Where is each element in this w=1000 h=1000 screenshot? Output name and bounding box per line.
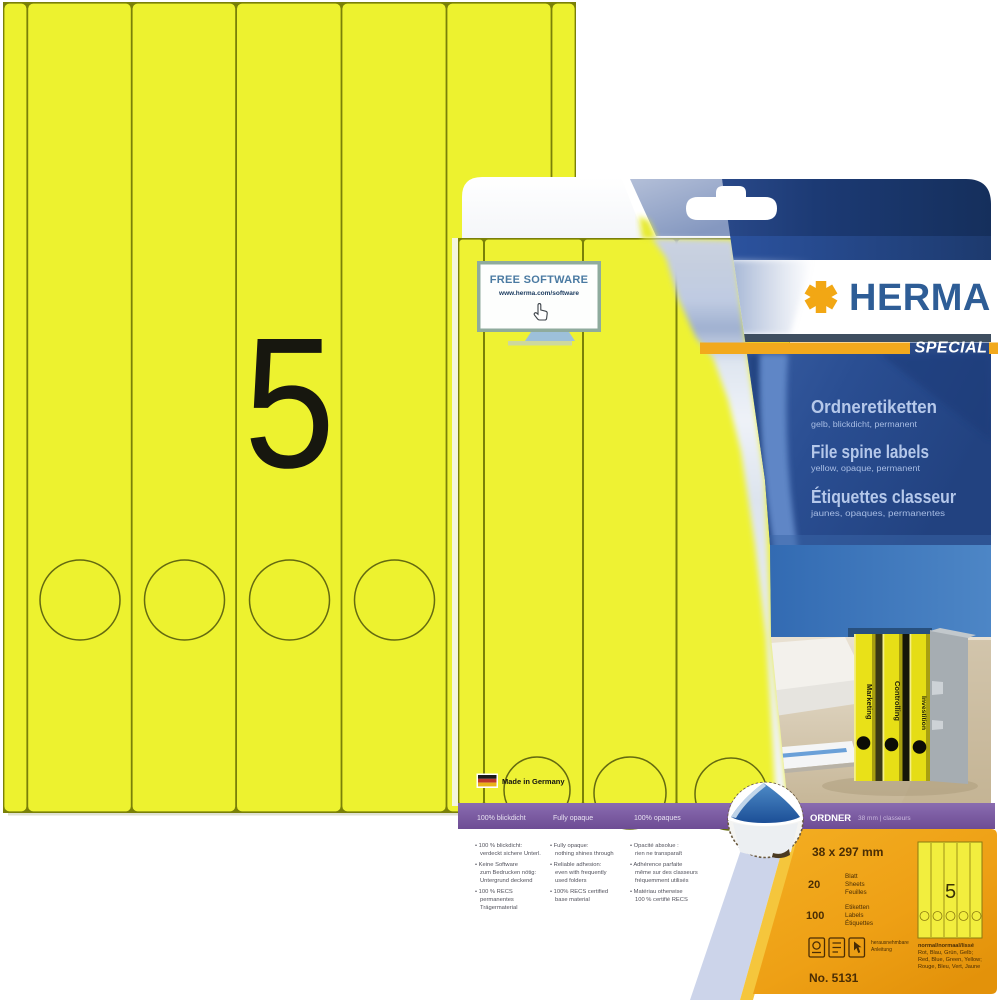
- svg-text:No. 5131: No. 5131: [809, 971, 859, 985]
- svg-text:20: 20: [808, 879, 820, 891]
- svg-text:Investition: Investition: [920, 696, 927, 730]
- svg-text:gelb, blickdicht, permanent: gelb, blickdicht, permanent: [811, 420, 918, 429]
- svg-text:Labels: Labels: [845, 912, 864, 919]
- svg-text:même sur des classeurs: même sur des classeurs: [635, 870, 698, 876]
- svg-text:Marketing: Marketing: [865, 684, 874, 720]
- svg-text:FREE SOFTWARE: FREE SOFTWARE: [490, 274, 589, 286]
- svg-text:HERMA: HERMA: [849, 277, 991, 319]
- svg-text:File spine labels: File spine labels: [811, 441, 929, 462]
- svg-text:rien ne transparaît: rien ne transparaît: [635, 851, 682, 857]
- svg-text:Ordneretiketten: Ordneretiketten: [811, 396, 937, 417]
- svg-text:normal/normaal/lissé: normal/normaal/lissé: [918, 943, 974, 949]
- svg-text:• Matériau otherwise: • Matériau otherwise: [630, 889, 683, 895]
- svg-text:www.herma.com/software: www.herma.com/software: [498, 290, 579, 297]
- svg-text:nothing shines through: nothing shines through: [555, 851, 614, 857]
- svg-text:used folders: used folders: [555, 878, 587, 884]
- svg-text:Red, Blue, Green, Yellow;: Red, Blue, Green, Yellow;: [918, 957, 982, 963]
- svg-text:verdeckt sichere Unterl.: verdeckt sichere Unterl.: [480, 851, 541, 857]
- svg-text:Sheets: Sheets: [845, 881, 865, 888]
- svg-text:Controlling: Controlling: [893, 681, 902, 721]
- svg-text:Untergrund deckend: Untergrund deckend: [480, 878, 533, 884]
- svg-text:5: 5: [244, 299, 335, 507]
- svg-text:Etiketten: Etiketten: [845, 904, 870, 911]
- svg-text:Blatt: Blatt: [845, 873, 858, 880]
- svg-text:100% blickdicht: 100% blickdicht: [477, 815, 526, 822]
- svg-text:Rot, Blau, Grün, Gelb;: Rot, Blau, Grün, Gelb;: [918, 950, 973, 956]
- svg-text:• 100% RECS certified: • 100% RECS certified: [550, 889, 608, 895]
- svg-text:100: 100: [806, 910, 824, 922]
- svg-text:Étiquettes classeur: Étiquettes classeur: [811, 486, 956, 507]
- svg-text:permanentes: permanentes: [480, 897, 514, 903]
- svg-text:100 % certifié RECS: 100 % certifié RECS: [635, 897, 688, 903]
- svg-text:yellow, opaque, permanent: yellow, opaque, permanent: [811, 464, 921, 473]
- svg-text:zum Bedrucken nötig:: zum Bedrucken nötig:: [480, 870, 536, 876]
- svg-text:fréquemment utilisés: fréquemment utilisés: [635, 878, 689, 884]
- svg-text:Étiquettes: Étiquettes: [845, 918, 873, 927]
- svg-text:38 mm | classeurs: 38 mm | classeurs: [858, 815, 911, 822]
- svg-text:• Opacité absolue :: • Opacité absolue :: [630, 843, 679, 849]
- svg-text:base material: base material: [555, 897, 590, 903]
- svg-text:jaunes, opaques, permanentes: jaunes, opaques, permanentes: [810, 509, 945, 518]
- svg-text:38 x 297 mm: 38 x 297 mm: [812, 845, 883, 859]
- svg-text:herausnehmbare: herausnehmbare: [871, 940, 909, 946]
- svg-text:even with frequently: even with frequently: [555, 870, 607, 876]
- svg-text:• Reliable adhesion:: • Reliable adhesion:: [550, 862, 602, 868]
- svg-text:• 100 % blickdicht:: • 100 % blickdicht:: [475, 843, 523, 849]
- svg-text:ORDNER: ORDNER: [810, 813, 851, 824]
- svg-text:5: 5: [945, 881, 956, 903]
- svg-text:100% opaques: 100% opaques: [634, 815, 681, 822]
- svg-text:Made in Germany: Made in Germany: [502, 777, 565, 786]
- svg-text:• Fully opaque:: • Fully opaque:: [550, 843, 589, 849]
- svg-text:Feuilles: Feuilles: [845, 889, 867, 896]
- svg-text:Fully opaque: Fully opaque: [553, 815, 593, 822]
- svg-text:• 100 % RECS: • 100 % RECS: [475, 889, 513, 895]
- svg-text:Anleitung: Anleitung: [871, 947, 892, 953]
- svg-text:• Adhérence parfaite: • Adhérence parfaite: [630, 862, 682, 868]
- svg-text:Rouge, Bleu, Vert, Jaune: Rouge, Bleu, Vert, Jaune: [918, 964, 980, 970]
- svg-text:SPECIAL: SPECIAL: [915, 340, 988, 357]
- svg-text:Trägermaterial: Trägermaterial: [480, 905, 517, 911]
- svg-text:• Keine Software: • Keine Software: [475, 862, 518, 868]
